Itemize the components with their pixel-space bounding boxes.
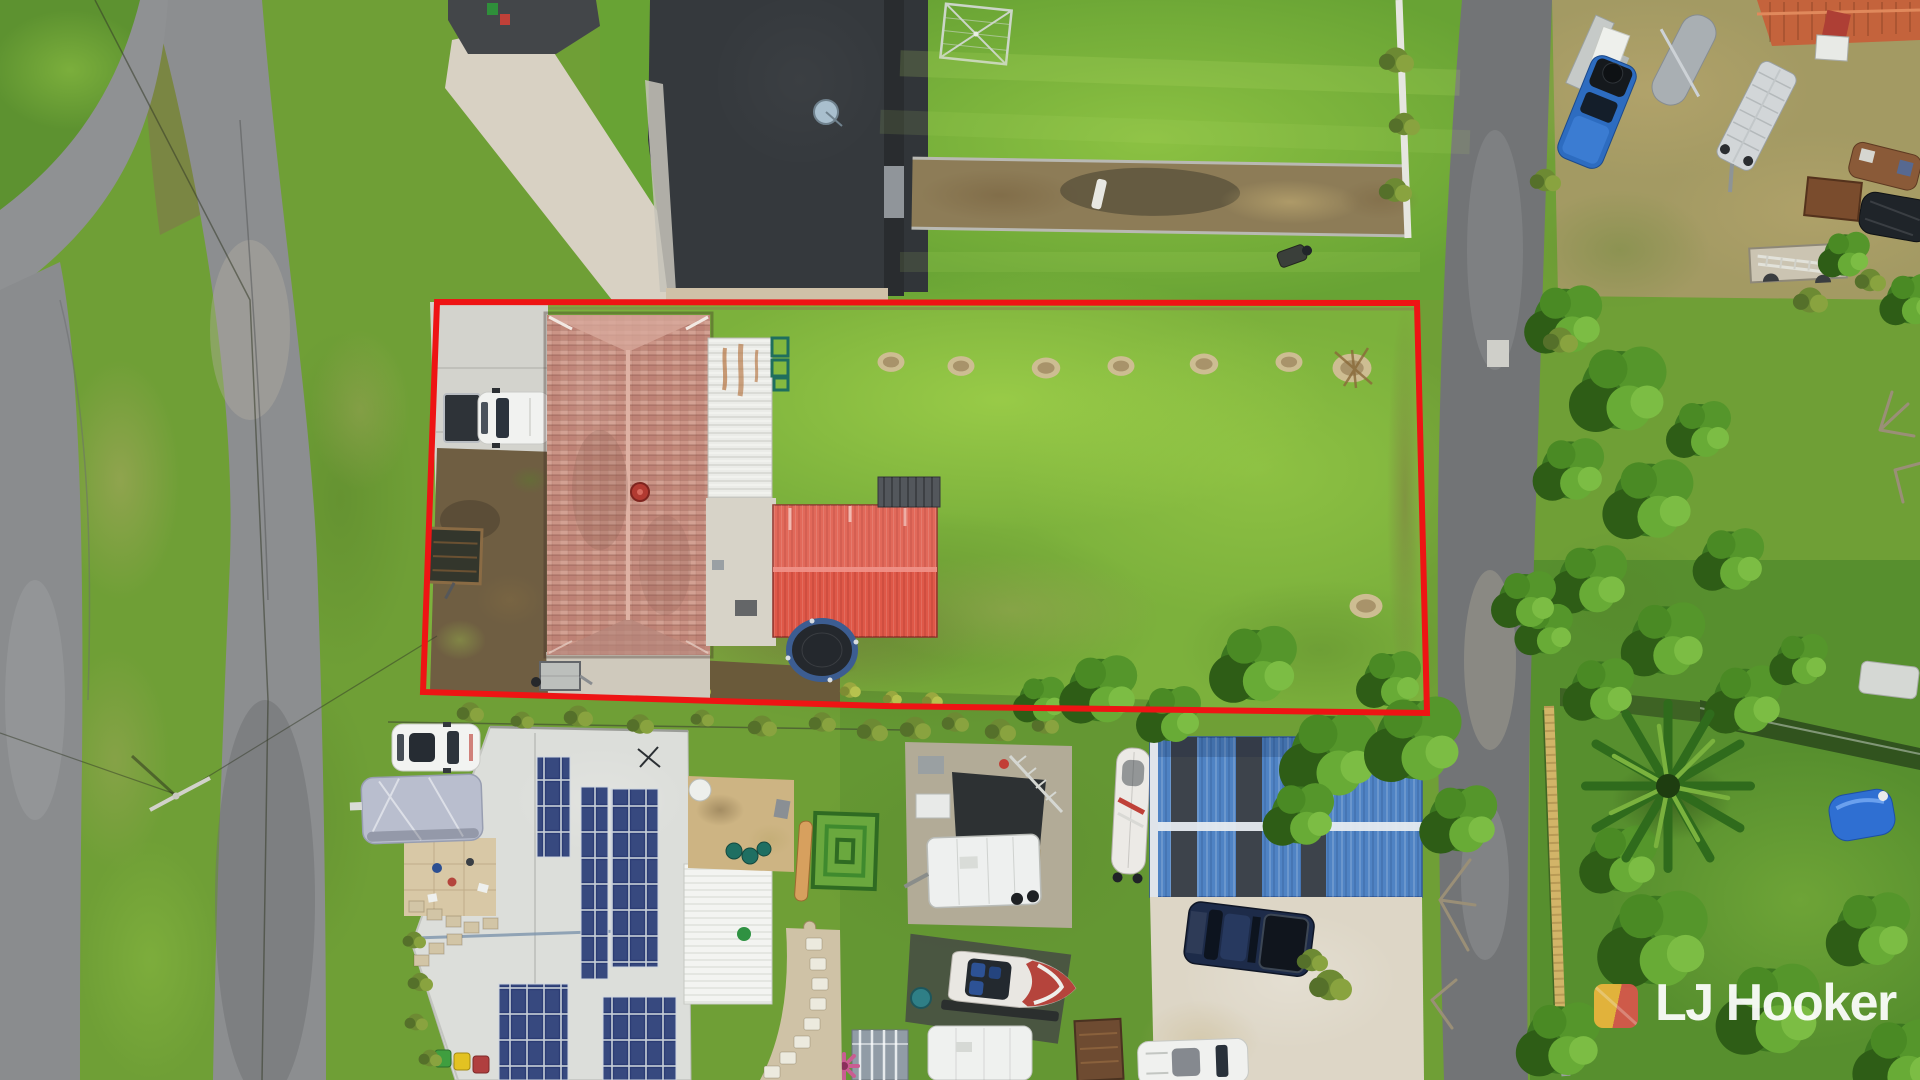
aerial-property-photo: LJ Hooker	[0, 0, 1920, 1080]
roadside-pad	[1487, 340, 1509, 367]
fenced-garden-strip	[911, 158, 1420, 236]
subject-house-tiled-roof	[545, 313, 712, 657]
side-concrete	[706, 498, 776, 646]
aerial-scene	[0, 0, 1920, 1080]
green-bin	[487, 3, 498, 15]
white-caravan	[928, 1026, 1032, 1080]
red-bin	[500, 14, 510, 25]
water-tank	[689, 779, 711, 801]
white-awning	[684, 864, 772, 1004]
white-ute	[444, 388, 550, 448]
lj-hooker-logo: LJ Hooker	[1594, 976, 1896, 1036]
rusty-box-trailer	[1804, 177, 1862, 220]
white-wagon	[1137, 1038, 1248, 1080]
covered-caravan	[349, 774, 483, 845]
wrapped-boat	[1110, 747, 1151, 884]
rusty-trailer	[1074, 1019, 1123, 1080]
lj-hooker-logo-mark-icon	[1594, 984, 1638, 1028]
pergola	[878, 477, 940, 507]
neighbor-dark-roof-house	[645, 0, 928, 300]
window-frame	[1815, 35, 1849, 61]
green-chair	[737, 927, 751, 941]
round-spa	[911, 988, 931, 1008]
mulch-garden	[688, 776, 794, 872]
square-garden-frame	[813, 813, 878, 889]
white-trailer	[1858, 661, 1919, 700]
garden-shed	[852, 1030, 908, 1080]
lj-hooker-logo-text: LJ Hooker	[1655, 973, 1896, 1033]
white-hatchback	[392, 722, 480, 773]
red-shed-roof	[773, 505, 937, 637]
